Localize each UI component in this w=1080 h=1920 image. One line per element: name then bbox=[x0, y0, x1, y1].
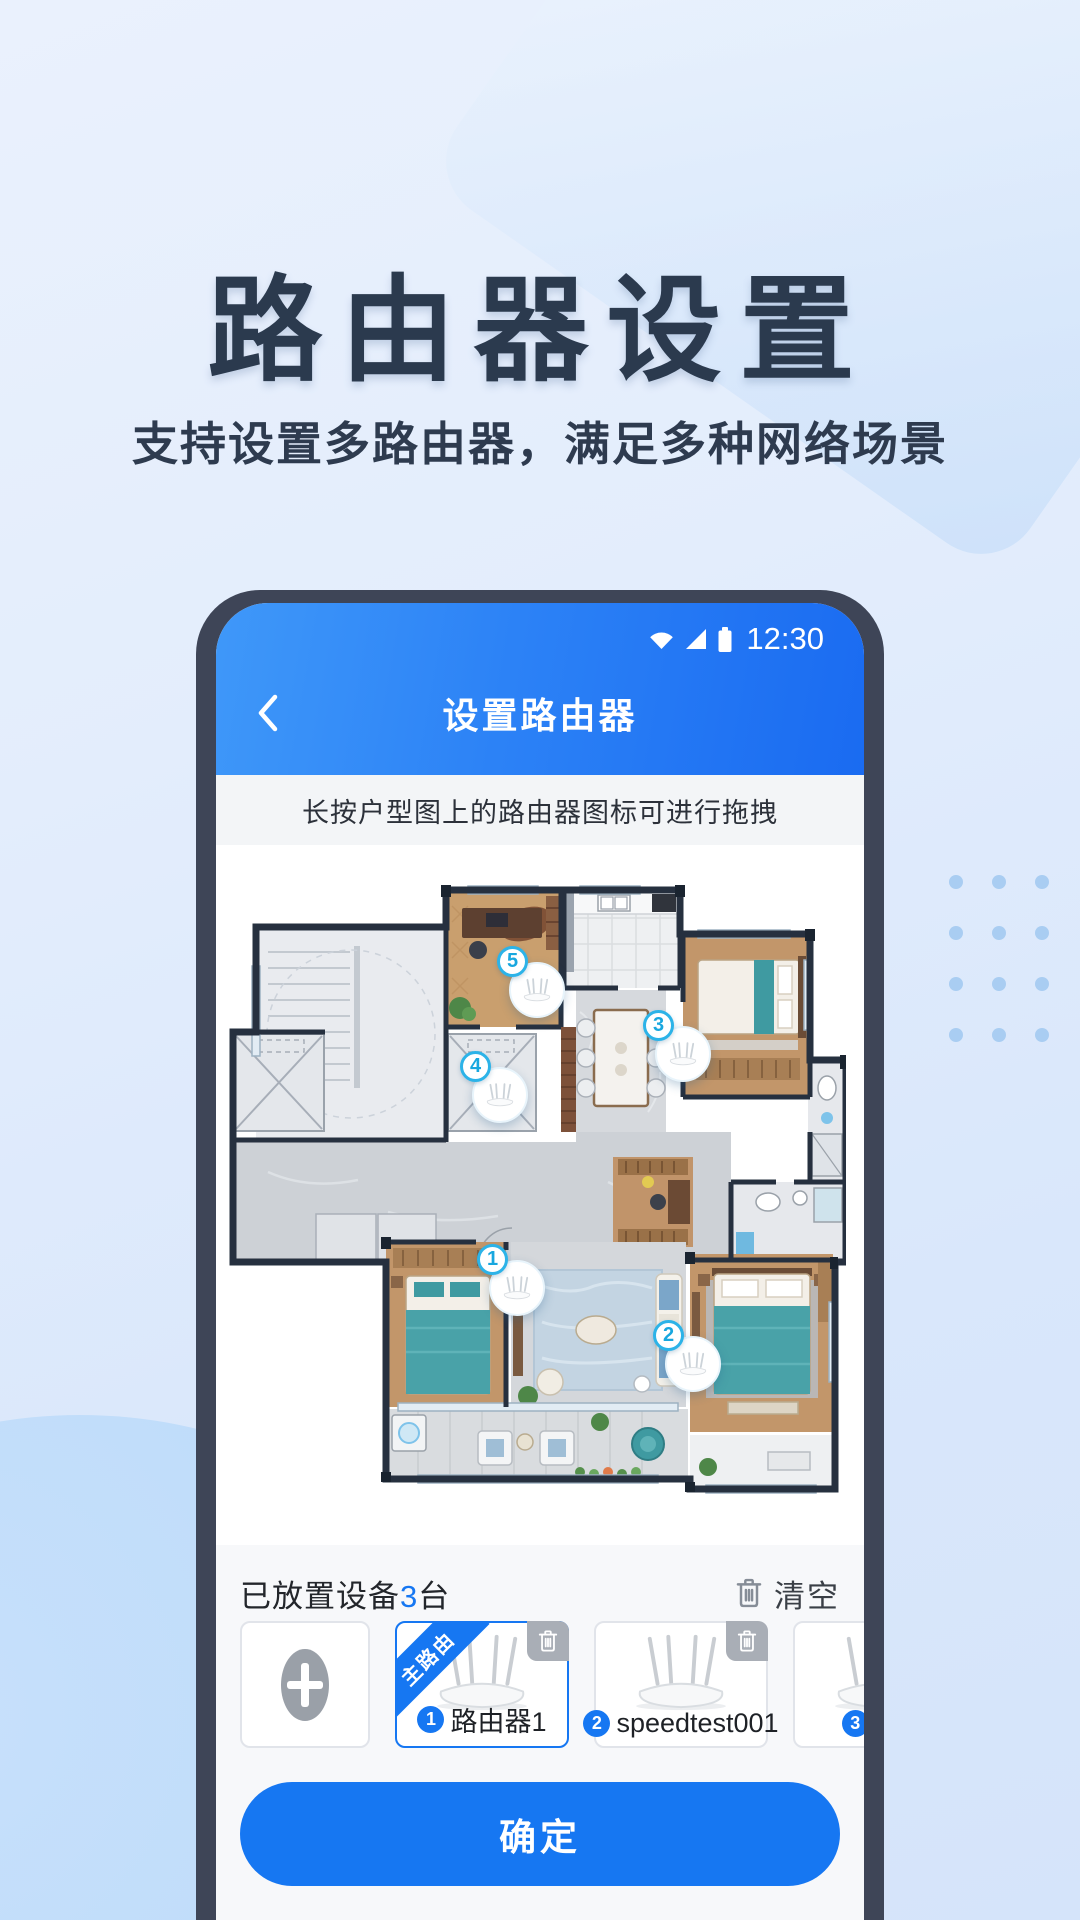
nav-bar: 设置路由器 bbox=[216, 661, 864, 765]
router-icon bbox=[519, 976, 555, 1004]
router-marker-number: 1 bbox=[477, 1244, 508, 1275]
devices-panel: 已放置设备3台 清空 bbox=[216, 1545, 864, 1920]
back-button[interactable] bbox=[246, 685, 290, 741]
phone-mockup: 12:30 设置路由器 长按户型图上的路由器图标可进行拖拽 bbox=[196, 590, 884, 1920]
router-marker-number: 5 bbox=[497, 946, 528, 977]
router-marker-5[interactable]: 5 bbox=[509, 962, 565, 1018]
confirm-button[interactable]: 确定 bbox=[240, 1782, 840, 1886]
decorative-dot bbox=[992, 926, 1006, 940]
device-number-badge: 3 bbox=[842, 1710, 864, 1737]
placed-devices-label: 已放置设备3台 bbox=[240, 1571, 450, 1616]
router-marker-1[interactable]: 1 bbox=[489, 1260, 545, 1316]
decorative-dot bbox=[1035, 926, 1049, 940]
trash-icon bbox=[736, 1629, 758, 1653]
device-number-badge: 1 bbox=[417, 1706, 444, 1733]
delete-device-button[interactable] bbox=[726, 1621, 768, 1661]
device-card-label: 3 spe bbox=[795, 1708, 864, 1739]
decorative-dot bbox=[992, 875, 1006, 889]
device-card-label: 2 speedtest001 bbox=[596, 1708, 766, 1739]
trash-icon bbox=[537, 1629, 559, 1653]
app-header: 12:30 设置路由器 bbox=[216, 603, 864, 775]
floor-plan[interactable]: 1 2 3 bbox=[228, 882, 846, 1507]
decorative-dot bbox=[1035, 977, 1049, 991]
clear-all-button[interactable]: 清空 bbox=[734, 1571, 840, 1616]
placed-count: 3 bbox=[400, 1579, 418, 1614]
signal-icon bbox=[684, 628, 708, 650]
instruction-text: 长按户型图上的路由器图标可进行拖拽 bbox=[216, 775, 864, 845]
delete-device-button[interactable] bbox=[527, 1621, 569, 1661]
page-subtitle: 支持设置多路由器，满足多种网络场景 bbox=[0, 408, 1080, 474]
screen-title: 设置路由器 bbox=[442, 687, 637, 739]
decorative-dot bbox=[949, 977, 963, 991]
add-device-card[interactable] bbox=[240, 1621, 370, 1748]
decorative-dot bbox=[992, 1028, 1006, 1042]
router-icon bbox=[499, 1274, 535, 1302]
device-card[interactable]: 2 speedtest001 bbox=[594, 1621, 768, 1748]
chevron-left-icon bbox=[254, 691, 282, 735]
status-bar: 12:30 bbox=[216, 603, 864, 661]
device-card-list: 主路由 1 路由器1 2 speedtest001 bbox=[240, 1621, 864, 1750]
router-icon bbox=[665, 1040, 701, 1068]
device-card-label: 1 路由器1 bbox=[397, 1700, 567, 1739]
device-card[interactable]: 3 spe bbox=[793, 1621, 864, 1748]
decorative-dot bbox=[1035, 875, 1049, 889]
router-marker-number: 2 bbox=[653, 1320, 684, 1351]
router-image bbox=[820, 1631, 864, 1713]
device-name: 路由器1 bbox=[450, 1700, 546, 1739]
device-card[interactable]: 主路由 1 路由器1 bbox=[395, 1621, 569, 1748]
wifi-icon bbox=[648, 628, 675, 650]
router-marker-number: 4 bbox=[460, 1051, 491, 1082]
decorative-dot bbox=[949, 875, 963, 889]
router-marker-number: 3 bbox=[643, 1010, 674, 1041]
device-number-badge: 2 bbox=[583, 1710, 610, 1737]
decorative-dot bbox=[992, 977, 1006, 991]
router-icon bbox=[482, 1081, 518, 1109]
router-marker-2[interactable]: 2 bbox=[665, 1336, 721, 1392]
router-icon bbox=[675, 1350, 711, 1378]
decorative-dot-grid bbox=[949, 875, 1049, 1042]
phone-screen: 12:30 设置路由器 长按户型图上的路由器图标可进行拖拽 bbox=[216, 603, 864, 1920]
trash-icon bbox=[734, 1577, 764, 1609]
plus-icon bbox=[279, 1647, 331, 1723]
router-marker-3[interactable]: 3 bbox=[655, 1026, 711, 1082]
battery-icon bbox=[717, 626, 733, 653]
router-marker-4[interactable]: 4 bbox=[472, 1067, 528, 1123]
decorative-dot bbox=[949, 926, 963, 940]
router-image bbox=[621, 1631, 741, 1713]
status-time: 12:30 bbox=[746, 621, 824, 657]
page-title: 路由器设置 bbox=[0, 238, 1080, 404]
decorative-dot bbox=[1035, 1028, 1049, 1042]
decorative-dot bbox=[949, 1028, 963, 1042]
floor-plan-section: 1 2 3 bbox=[216, 845, 864, 1545]
page-background: 路由器设置 支持设置多路由器，满足多种网络场景 12:30 bbox=[0, 0, 1080, 1920]
device-name: speedtest001 bbox=[616, 1708, 778, 1739]
